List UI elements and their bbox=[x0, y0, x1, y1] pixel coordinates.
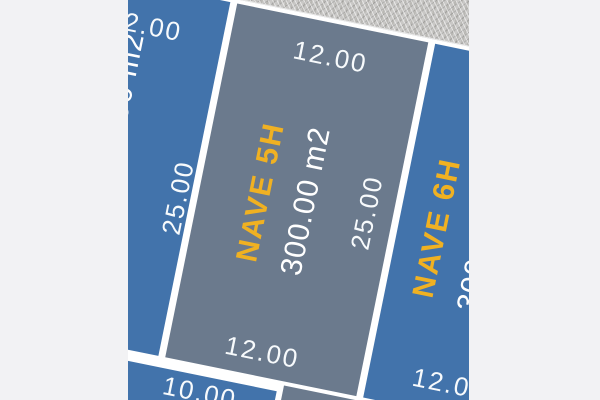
lot-nave-6h-label-stack: NAVE 6H 300.00 m2 bbox=[405, 150, 469, 314]
lot-nave-5h-depth-dimension: 25.00 bbox=[344, 172, 389, 252]
lot-nave-5h-width-dimension-top: 12.00 bbox=[290, 34, 370, 79]
lot-bottom-left-width-dimension: 10.00 bbox=[160, 370, 240, 400]
lot-nave-5h-label-stack: NAVE 5H 300.00 m2 bbox=[229, 114, 337, 278]
lot-nave-5h-width-dimension-bottom: 12.00 bbox=[222, 329, 302, 374]
screenshot-stage: 12.00 300.00 m2 25.00 12.00 NAVE 5H 300.… bbox=[0, 0, 600, 400]
site-plan-image: 12.00 300.00 m2 25.00 12.00 NAVE 5H 300.… bbox=[128, 0, 469, 400]
lot-nave-6h-width-dimension-bottom: 12.00 bbox=[409, 361, 469, 400]
lot-left-area-label: 300.00 m2 bbox=[128, 30, 152, 185]
